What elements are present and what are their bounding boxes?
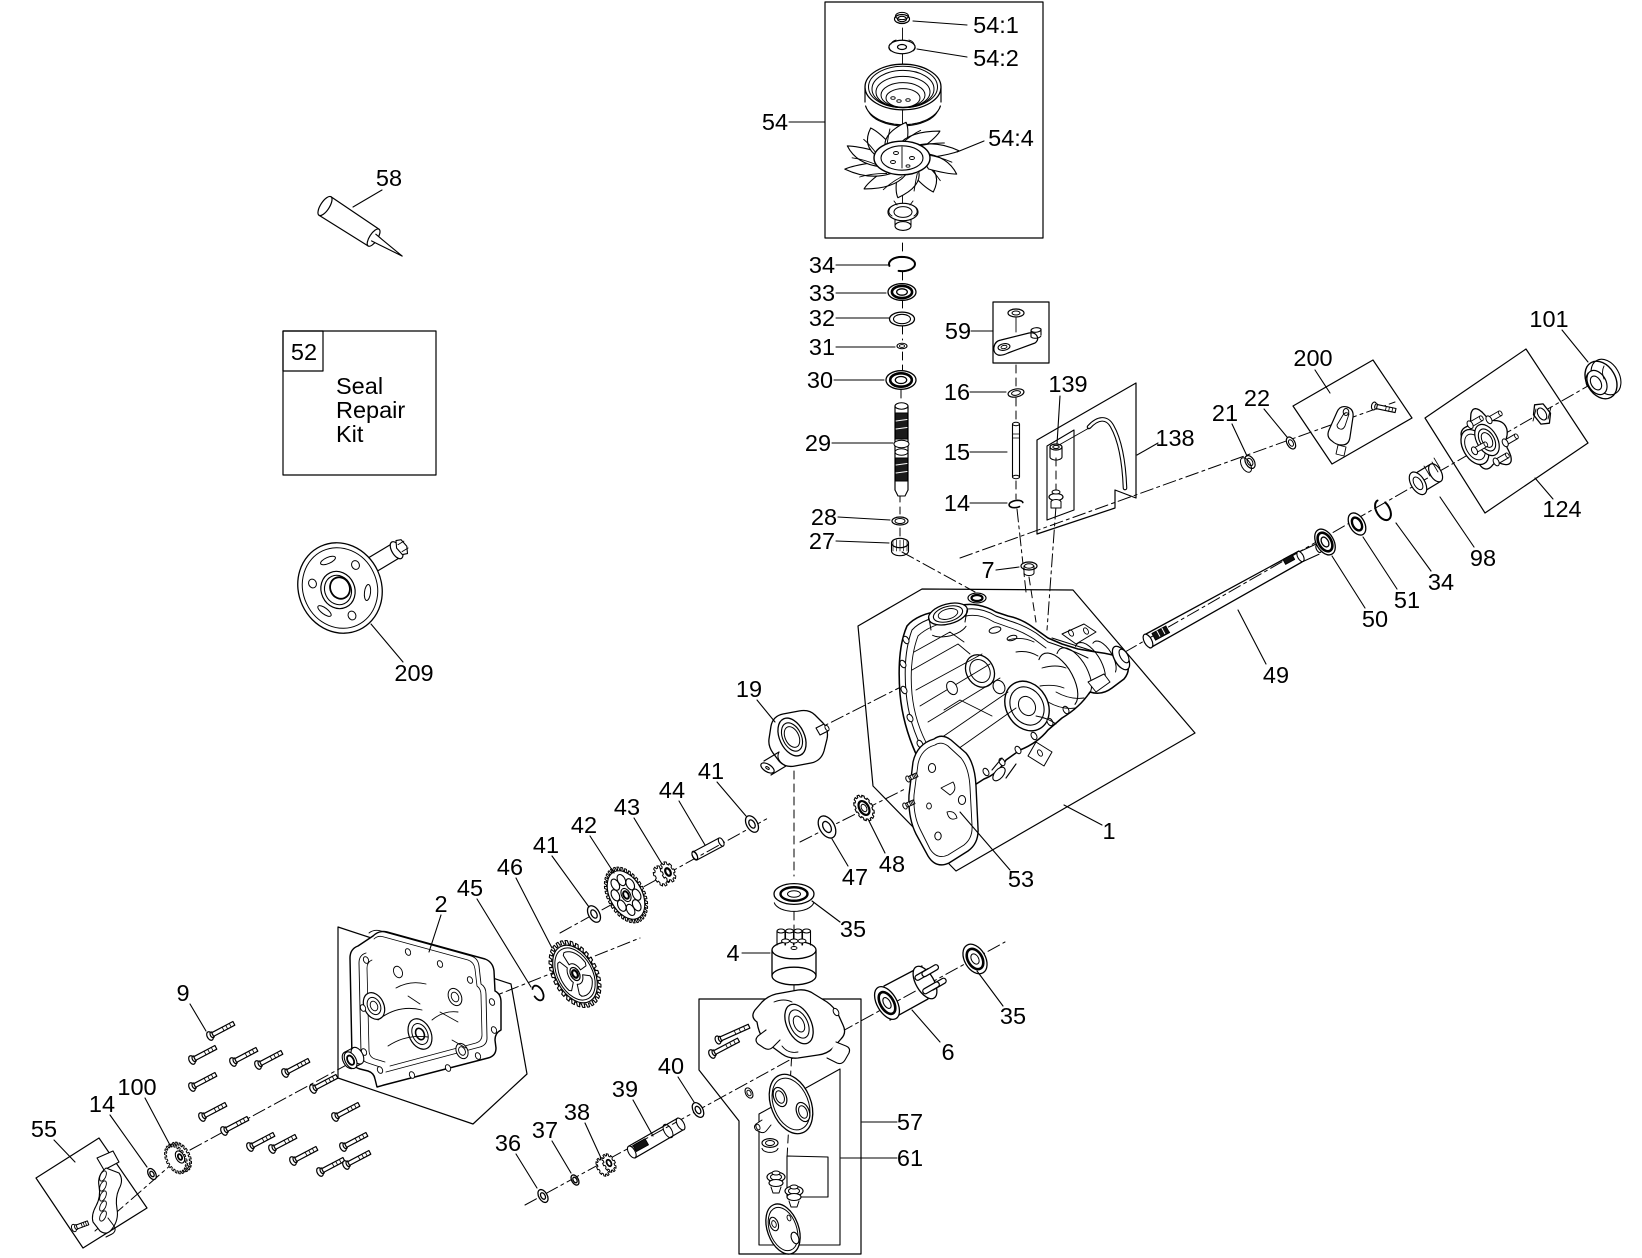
- svg-text:61: 61: [897, 1145, 923, 1171]
- svg-text:209: 209: [394, 660, 433, 686]
- svg-text:37: 37: [532, 1117, 558, 1143]
- svg-text:98: 98: [1470, 545, 1496, 571]
- svg-text:51: 51: [1394, 587, 1420, 613]
- svg-text:22: 22: [1244, 385, 1270, 411]
- svg-text:Kit: Kit: [336, 421, 364, 447]
- svg-text:39: 39: [612, 1076, 638, 1102]
- svg-text:2: 2: [434, 891, 447, 917]
- svg-text:14: 14: [89, 1091, 115, 1117]
- svg-text:124: 124: [1542, 496, 1581, 522]
- svg-text:16: 16: [944, 379, 970, 405]
- svg-text:59: 59: [945, 318, 971, 344]
- svg-text:200: 200: [1293, 345, 1332, 371]
- svg-text:139: 139: [1048, 371, 1087, 397]
- svg-text:30: 30: [807, 367, 833, 393]
- svg-text:55: 55: [31, 1116, 57, 1142]
- svg-text:58: 58: [376, 165, 402, 191]
- svg-text:43: 43: [614, 794, 640, 820]
- svg-text:29: 29: [805, 430, 831, 456]
- svg-text:50: 50: [1362, 606, 1388, 632]
- svg-text:4: 4: [726, 940, 739, 966]
- svg-text:49: 49: [1263, 662, 1289, 688]
- svg-text:100: 100: [117, 1074, 156, 1100]
- svg-text:57: 57: [897, 1109, 923, 1135]
- svg-text:7: 7: [981, 557, 994, 583]
- svg-text:101: 101: [1529, 306, 1568, 332]
- svg-text:42: 42: [571, 812, 597, 838]
- svg-text:15: 15: [944, 439, 970, 465]
- svg-text:28: 28: [811, 504, 837, 530]
- svg-text:138: 138: [1155, 425, 1194, 451]
- svg-text:41: 41: [533, 832, 559, 858]
- svg-text:40: 40: [658, 1053, 684, 1079]
- svg-text:9: 9: [176, 980, 189, 1006]
- svg-text:46: 46: [497, 854, 523, 880]
- svg-text:53: 53: [1008, 866, 1034, 892]
- svg-text:27: 27: [809, 528, 835, 554]
- svg-text:19: 19: [736, 676, 762, 702]
- svg-text:54:4: 54:4: [988, 125, 1034, 151]
- svg-text:54: 54: [762, 109, 788, 135]
- svg-text:1: 1: [1102, 818, 1115, 844]
- svg-text:31: 31: [809, 334, 835, 360]
- svg-text:54:1: 54:1: [973, 12, 1019, 38]
- svg-text:36: 36: [495, 1130, 521, 1156]
- svg-text:47: 47: [842, 864, 868, 890]
- svg-text:41: 41: [698, 758, 724, 784]
- svg-text:38: 38: [564, 1099, 590, 1125]
- svg-text:48: 48: [879, 851, 905, 877]
- svg-text:33: 33: [809, 280, 835, 306]
- svg-text:35: 35: [840, 916, 866, 942]
- svg-text:21: 21: [1212, 400, 1238, 426]
- svg-text:14: 14: [944, 490, 970, 516]
- svg-text:34: 34: [1428, 569, 1454, 595]
- svg-text:Repair: Repair: [336, 397, 405, 423]
- svg-text:34: 34: [809, 252, 835, 278]
- svg-text:35: 35: [1000, 1003, 1026, 1029]
- svg-text:52: 52: [291, 339, 317, 365]
- svg-text:32: 32: [809, 305, 835, 331]
- svg-text:44: 44: [659, 777, 685, 803]
- svg-text:Seal: Seal: [336, 373, 383, 399]
- svg-text:6: 6: [941, 1039, 954, 1065]
- svg-text:45: 45: [457, 875, 483, 901]
- svg-text:54:2: 54:2: [973, 45, 1019, 71]
